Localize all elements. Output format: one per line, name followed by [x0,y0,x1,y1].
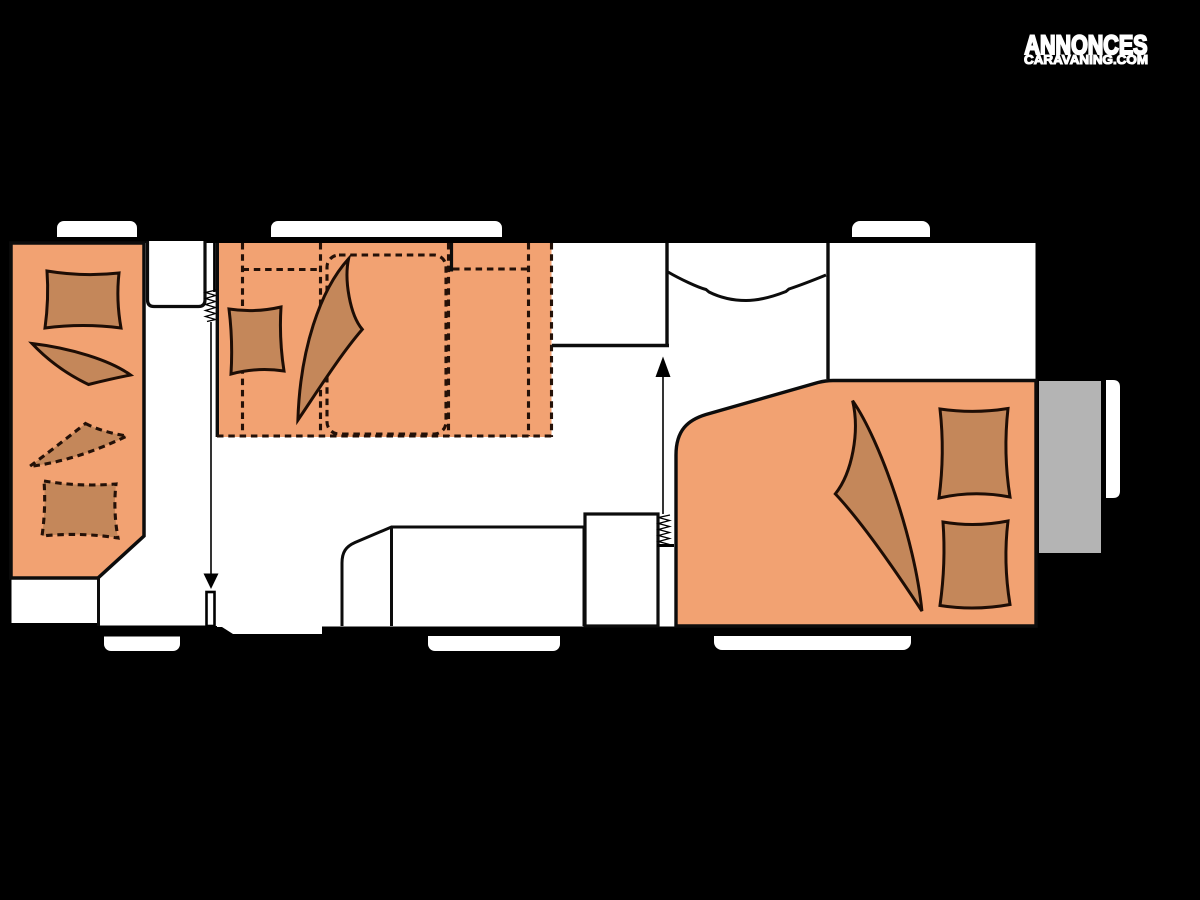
svg-text:CARAVANING.COM: CARAVANING.COM [1024,52,1148,67]
